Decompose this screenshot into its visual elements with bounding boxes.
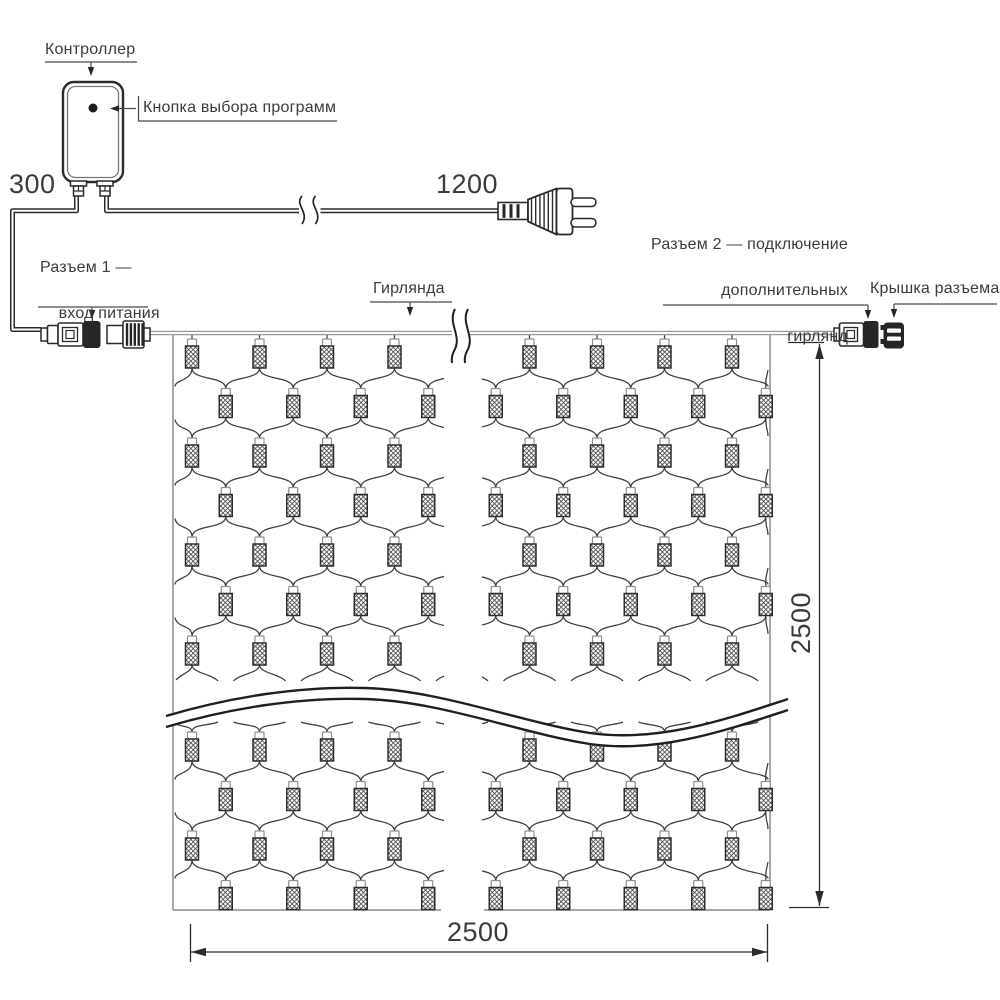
lamp [388, 636, 401, 665]
dimension-300-label: 300 [9, 170, 56, 198]
lamp [759, 881, 772, 910]
lamp [219, 488, 232, 517]
lamp-body [253, 739, 266, 761]
lamp-body [726, 739, 739, 761]
lamp-body [354, 396, 367, 418]
conn1-socket-sleeve [107, 326, 123, 344]
arrowhead [815, 891, 823, 906]
cord-outline [107, 194, 300, 211]
lamp [624, 587, 637, 616]
lamp [591, 438, 604, 467]
lamp [287, 488, 300, 517]
cap-slot [887, 337, 901, 341]
lamp-body [186, 838, 199, 860]
lamp-body [624, 789, 637, 811]
lamp-body [557, 495, 570, 517]
lamp [759, 782, 772, 811]
lamp [624, 782, 637, 811]
lamp-body [422, 396, 435, 418]
lamp [253, 537, 266, 566]
lamp [422, 782, 435, 811]
cord-break-squiggle [313, 196, 318, 224]
lamp-body [591, 445, 604, 467]
lamp-body [253, 544, 266, 566]
lamp [591, 636, 604, 665]
lamp-body [422, 789, 435, 811]
lamp-body [692, 396, 705, 418]
lamp-body [658, 838, 671, 860]
lamp [489, 881, 502, 910]
lamp-body [726, 346, 739, 368]
lamp [759, 488, 772, 517]
lamp [591, 831, 604, 860]
lamp-body [253, 346, 266, 368]
lamp-body [354, 789, 367, 811]
lamp [624, 389, 637, 418]
lamp [186, 438, 199, 467]
lamp-body [186, 739, 199, 761]
lamp-body [726, 643, 739, 665]
lamp [219, 881, 232, 910]
lamp-body [219, 789, 232, 811]
net-height-dimension-label: 2500 [787, 534, 815, 654]
lamp-body [388, 739, 401, 761]
lamp [388, 537, 401, 566]
lamp-body [219, 396, 232, 418]
garland-label: Гирлянда [373, 278, 445, 300]
lamp-body [253, 643, 266, 665]
leader-line [894, 304, 997, 312]
lamp [591, 537, 604, 566]
lamp-body [287, 495, 300, 517]
lamp-body [388, 544, 401, 566]
connector1-label-line1: Разъем 1 — [40, 259, 132, 276]
power-plug [498, 189, 596, 235]
lamp-body [759, 789, 772, 811]
lamp-body [523, 838, 536, 860]
controller-box [63, 82, 123, 182]
lamp-body [489, 789, 502, 811]
conn1-sleeve [48, 326, 59, 344]
lamp [422, 587, 435, 616]
lamp [354, 881, 367, 910]
lamp-body [523, 445, 536, 467]
lamp [557, 587, 570, 616]
lamp [354, 389, 367, 418]
lamp-body [557, 888, 570, 910]
conn1-nut-rib [134, 323, 136, 346]
lamp-body [759, 495, 772, 517]
lamp [523, 537, 536, 566]
lamp-body [523, 739, 536, 761]
lamp [186, 831, 199, 860]
lamp-body [591, 346, 604, 368]
lamp [422, 389, 435, 418]
lamp [422, 881, 435, 910]
lamp-body [591, 643, 604, 665]
lamp-body [253, 445, 266, 467]
lamp-body [422, 594, 435, 616]
connector-cap-label: Крышка разъема [870, 278, 999, 300]
lamp-body [658, 643, 671, 665]
lamp [186, 537, 199, 566]
lamp [388, 438, 401, 467]
lamp [557, 488, 570, 517]
lamp-body [253, 838, 266, 860]
lamp [489, 782, 502, 811]
conn1-nut-rib [126, 323, 128, 346]
lamp [658, 831, 671, 860]
lamp [759, 587, 772, 616]
lamp [287, 389, 300, 418]
cap-tab [881, 325, 885, 330]
controller-unit [63, 82, 123, 196]
lamp [658, 438, 671, 467]
lamp [624, 488, 637, 517]
program-button-dot [89, 104, 98, 113]
lamp-body [219, 495, 232, 517]
lamp-body [186, 643, 199, 665]
lamp [388, 732, 401, 761]
lamp-body [219, 594, 232, 616]
net-mesh [150, 333, 836, 910]
lamp [759, 389, 772, 418]
plug-ferrule-rib [510, 204, 513, 218]
lamp-body [489, 495, 502, 517]
lamp [253, 831, 266, 860]
lamp [658, 537, 671, 566]
connector-1 [41, 321, 150, 348]
lamp-body [624, 396, 637, 418]
lamp [253, 636, 266, 665]
lamp-body [422, 888, 435, 910]
lamp [354, 782, 367, 811]
lamp-body [321, 643, 334, 665]
lamp [523, 438, 536, 467]
net-width-dimension-label: 2500 [388, 918, 568, 946]
lamp-body [321, 445, 334, 467]
connector2-label-line2: дополнительных [721, 282, 848, 299]
arrowhead [865, 310, 871, 319]
lamp-body [219, 888, 232, 910]
lamp-body [726, 544, 739, 566]
conn1-flange-out [144, 328, 150, 341]
conn1-nut-rib [130, 323, 132, 346]
lamp [692, 587, 705, 616]
lamp [321, 831, 334, 860]
lamp [489, 488, 502, 517]
lamp [726, 732, 739, 761]
lamp-body [354, 594, 367, 616]
lamp [523, 732, 536, 761]
lamp-body [186, 544, 199, 566]
lamp-body [726, 445, 739, 467]
lamp [287, 587, 300, 616]
lamp-body [388, 838, 401, 860]
plug-pin [571, 219, 596, 228]
lamp [321, 438, 334, 467]
lamp-body [624, 594, 637, 616]
lamp-body [726, 838, 739, 860]
lamp [219, 587, 232, 616]
connector1-label-line2: вход питания [59, 305, 160, 322]
lamp [354, 488, 367, 517]
connector2-label: Разъем 2 — подключение дополнительных ги… [600, 233, 848, 348]
lamp [219, 389, 232, 418]
conn1-flange [41, 328, 48, 341]
lamp-body [354, 495, 367, 517]
lamp [726, 438, 739, 467]
lamp [186, 339, 199, 368]
net-gap-mask [444, 337, 482, 913]
lamp-body [287, 789, 300, 811]
arrowhead [752, 948, 767, 956]
lamp-body [388, 346, 401, 368]
dimension-1200-label: 1200 [436, 170, 498, 198]
lamp [219, 782, 232, 811]
lamp-body [388, 445, 401, 467]
plug-face [557, 189, 573, 235]
plug-pin [571, 198, 596, 207]
cable-gland [97, 181, 113, 196]
lamp-body [489, 594, 502, 616]
lamp-body [186, 346, 199, 368]
lamp [253, 732, 266, 761]
lamp [489, 587, 502, 616]
lamp-body [658, 346, 671, 368]
lamp-body [658, 544, 671, 566]
lamp-body [624, 495, 637, 517]
lamp-body [321, 739, 334, 761]
lamp-body [489, 396, 502, 418]
lamp-body [523, 643, 536, 665]
lamp-body [759, 396, 772, 418]
lamp-body [692, 495, 705, 517]
lamp [422, 488, 435, 517]
lamp-body [658, 445, 671, 467]
lamp-body [557, 594, 570, 616]
lamp-body [321, 838, 334, 860]
arrowhead [891, 309, 897, 318]
connector2-label-line3: гирлянд [787, 328, 848, 345]
lamp [287, 881, 300, 910]
arrowhead [88, 67, 94, 76]
lamp-body [692, 594, 705, 616]
controller-label: Контроллер [45, 39, 135, 61]
lamp-body [624, 888, 637, 910]
lamp-body [422, 495, 435, 517]
lamp [692, 488, 705, 517]
lamp [287, 782, 300, 811]
conn1-plug-dark [83, 321, 101, 348]
connector-cap-body [884, 323, 905, 349]
lamp-body [759, 594, 772, 616]
lamp [523, 636, 536, 665]
lamp [624, 881, 637, 910]
lamp [726, 831, 739, 860]
connector1-label: Разъем 1 — вход питания [40, 256, 160, 325]
lamp-body [321, 544, 334, 566]
lamp [321, 537, 334, 566]
lamp-body [523, 544, 536, 566]
lamp [186, 636, 199, 665]
lamp [557, 389, 570, 418]
arrowhead [191, 948, 206, 956]
lamp [523, 831, 536, 860]
lamp [489, 389, 502, 418]
lamp-body [186, 445, 199, 467]
lamp [388, 831, 401, 860]
plug-ferrule-rib [517, 204, 520, 218]
diagram-canvas [0, 0, 1000, 1000]
lamp-body [692, 789, 705, 811]
lamp-body [692, 888, 705, 910]
lamp [726, 636, 739, 665]
lamp-body [287, 888, 300, 910]
lamp [557, 881, 570, 910]
diagram-page: Контроллер Кнопка выбора программ 300 12… [0, 0, 1000, 1000]
plug-ferrule-rib [503, 204, 506, 218]
cap-tab [881, 339, 885, 344]
lamp-body [591, 544, 604, 566]
connector2-label-line1: Разъем 2 — подключение [651, 236, 848, 253]
lamp-body [557, 789, 570, 811]
lamp [253, 339, 266, 368]
conn2-plug-dark [864, 321, 879, 348]
lamp [523, 339, 536, 368]
cord-break-squiggle [300, 196, 305, 224]
lamp-body [287, 594, 300, 616]
lamp-body [287, 396, 300, 418]
lamp-body [759, 888, 772, 910]
lamp [253, 438, 266, 467]
program-button-label: Кнопка выбора программ [143, 97, 336, 119]
lamp-body [591, 838, 604, 860]
lamp-body [321, 346, 334, 368]
arrowhead [407, 307, 413, 316]
lamp [186, 732, 199, 761]
lamp-body [489, 888, 502, 910]
lamp-body [557, 396, 570, 418]
lamp [321, 636, 334, 665]
cable-gland [71, 181, 87, 196]
conn1-nut-rib [138, 323, 140, 346]
lamp-body [523, 346, 536, 368]
lamp [321, 339, 334, 368]
lamp [692, 389, 705, 418]
lamp-body [354, 888, 367, 910]
lamp-body [388, 643, 401, 665]
lamp [658, 636, 671, 665]
lamp [321, 732, 334, 761]
lamp [557, 782, 570, 811]
cap-slot [887, 329, 901, 333]
lamp [726, 537, 739, 566]
lamp [692, 881, 705, 910]
lamp [692, 782, 705, 811]
lamp [388, 339, 401, 368]
lamp [354, 587, 367, 616]
